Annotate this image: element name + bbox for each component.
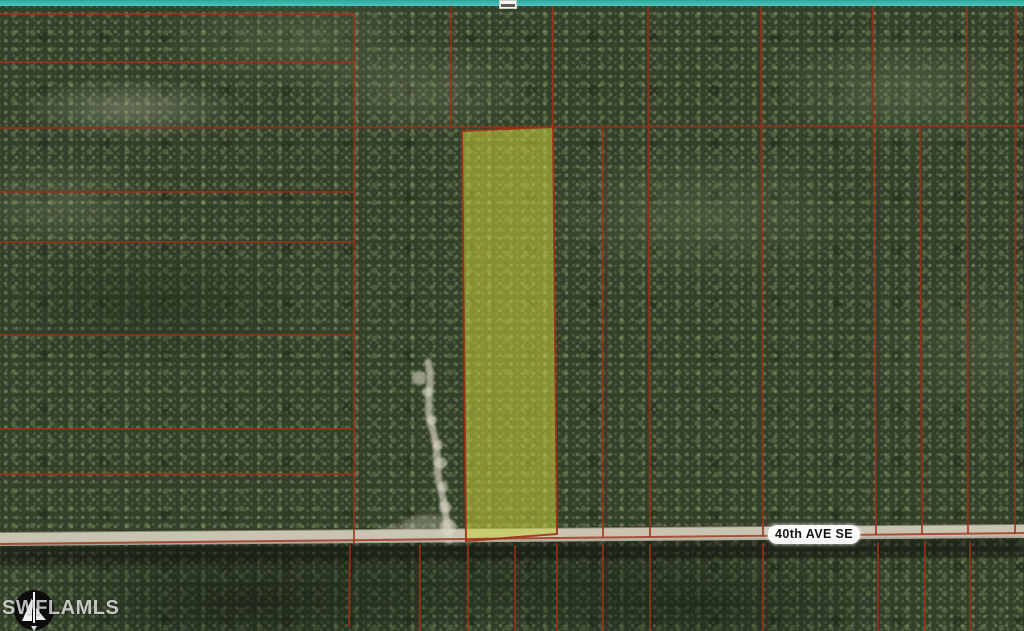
parcel-boundary-line <box>920 127 922 534</box>
trail-clearing-dot <box>422 387 432 397</box>
parcel-boundary-line <box>761 6 763 535</box>
parcel-boundary-line <box>967 6 968 533</box>
highlighted-parcel <box>462 127 557 541</box>
parcel-boundary-line <box>0 126 1024 128</box>
mls-watermark: SWFLAMLS <box>2 597 119 620</box>
dirt-trail <box>428 362 449 540</box>
parcel-boundary-line <box>648 6 650 536</box>
trail-clearing-dot <box>433 440 443 450</box>
parcel-boundary-line <box>873 6 876 534</box>
map-overlay <box>0 0 1024 631</box>
aerial-parcel-map: 40th AVE SE SWFLAMLS <box>0 0 1024 631</box>
road-name-label: 40th AVE SE <box>768 525 860 544</box>
partial-map-label-bar <box>501 4 515 7</box>
trail-clearing-dot <box>412 371 426 385</box>
trail-clearing-dot <box>438 482 448 492</box>
trail-clearing-dot <box>439 501 451 513</box>
partial-map-label-box <box>499 0 517 9</box>
parcel-boundary-line <box>1015 6 1016 533</box>
parcel-boundary-line <box>349 546 350 626</box>
trail-clearing-dot <box>435 457 447 469</box>
roadside-clearing <box>374 526 422 540</box>
trail-clearing-dot <box>427 415 437 425</box>
